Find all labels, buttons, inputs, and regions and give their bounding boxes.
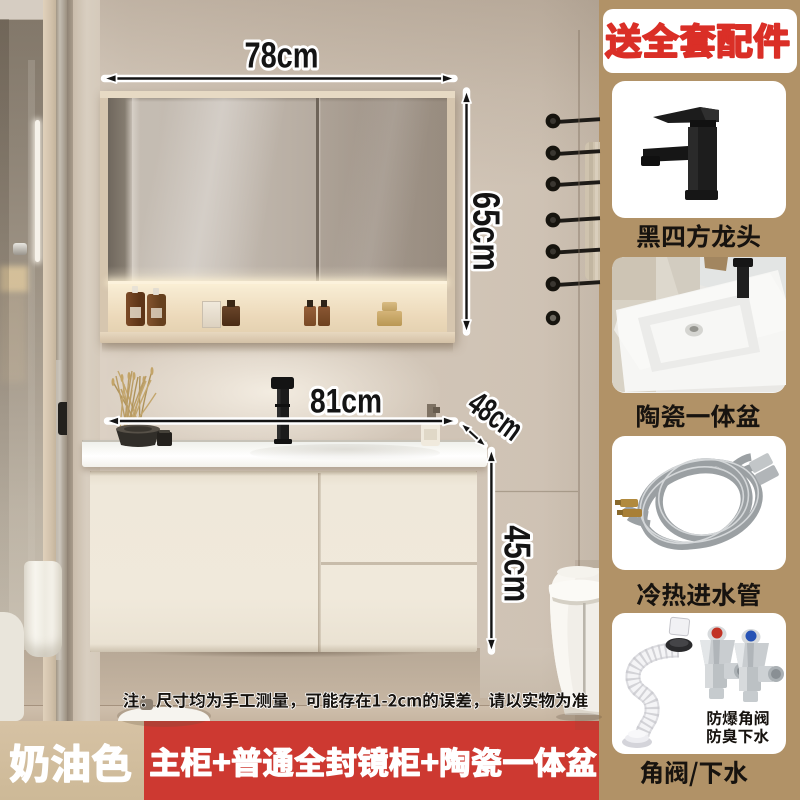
svg-text:48cm: 48cm (461, 384, 530, 448)
svg-text:81cm: 81cm (310, 383, 382, 421)
svg-text:65cm: 65cm (465, 192, 507, 271)
svg-text:45cm: 45cm (497, 525, 538, 602)
svg-text:78cm: 78cm (245, 35, 319, 76)
